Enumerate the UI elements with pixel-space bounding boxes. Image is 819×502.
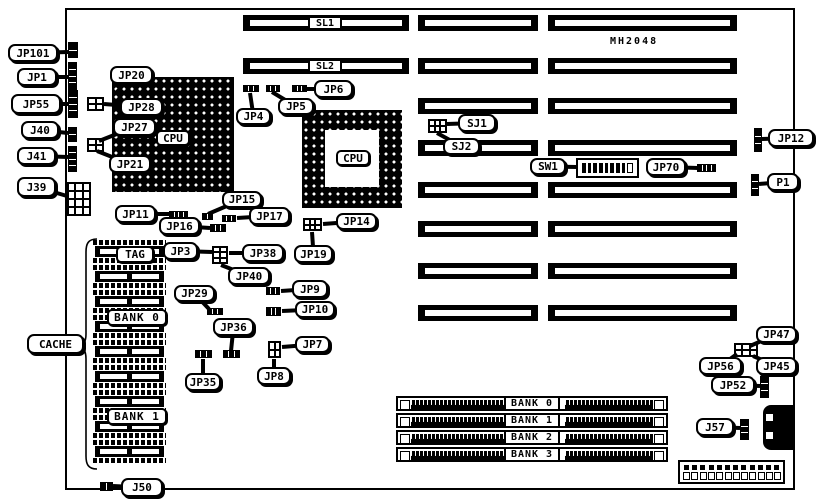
board-outline — [65, 8, 795, 490]
callout-j40: J40 — [21, 121, 59, 139]
callout-jp55: JP55 — [11, 94, 61, 114]
leader-line-j41 — [37, 156, 69, 157]
leader-line-jp101 — [33, 52, 68, 53]
callout-jp1: JP1 — [17, 68, 57, 86]
leader-line-j40 — [40, 130, 68, 133]
motherboard-diagram: JP101JP1JP55J40J41J39JP20JP28JP27JP21JP4… — [0, 0, 819, 502]
callout-jp101: JP101 — [8, 44, 58, 62]
leader-line-j39 — [37, 187, 68, 196]
callout-j41: J41 — [17, 147, 56, 165]
callout-j39: J39 — [17, 177, 56, 197]
